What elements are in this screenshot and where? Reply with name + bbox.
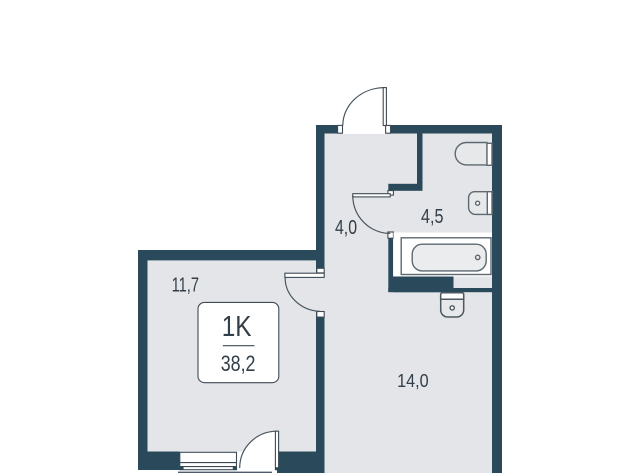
- svg-text:4,0: 4,0: [335, 217, 357, 239]
- svg-text:11,7: 11,7: [172, 274, 199, 296]
- svg-text:1K: 1K: [222, 311, 252, 343]
- svg-text:38,2: 38,2: [221, 351, 256, 376]
- svg-text:14,0: 14,0: [397, 371, 429, 391]
- svg-text:4,5: 4,5: [421, 206, 444, 228]
